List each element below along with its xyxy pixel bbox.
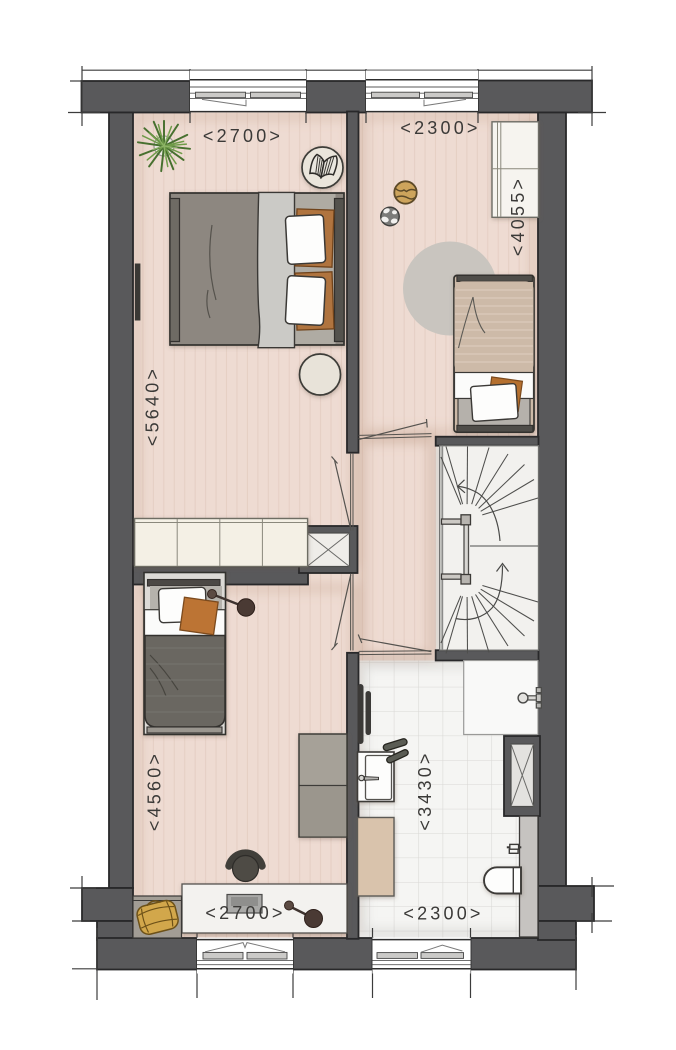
svg-text:<2300>: <2300> xyxy=(403,904,483,924)
svg-text:<4055>: <4055> xyxy=(508,176,528,256)
svg-text:<3430>: <3430> xyxy=(415,750,435,830)
svg-text:<2700>: <2700> xyxy=(203,126,283,146)
svg-text:<5640>: <5640> xyxy=(143,366,163,446)
svg-text:<4560>: <4560> xyxy=(145,751,165,831)
svg-text:<2700>: <2700> xyxy=(205,903,285,923)
svg-text:<2300>: <2300> xyxy=(400,118,480,138)
